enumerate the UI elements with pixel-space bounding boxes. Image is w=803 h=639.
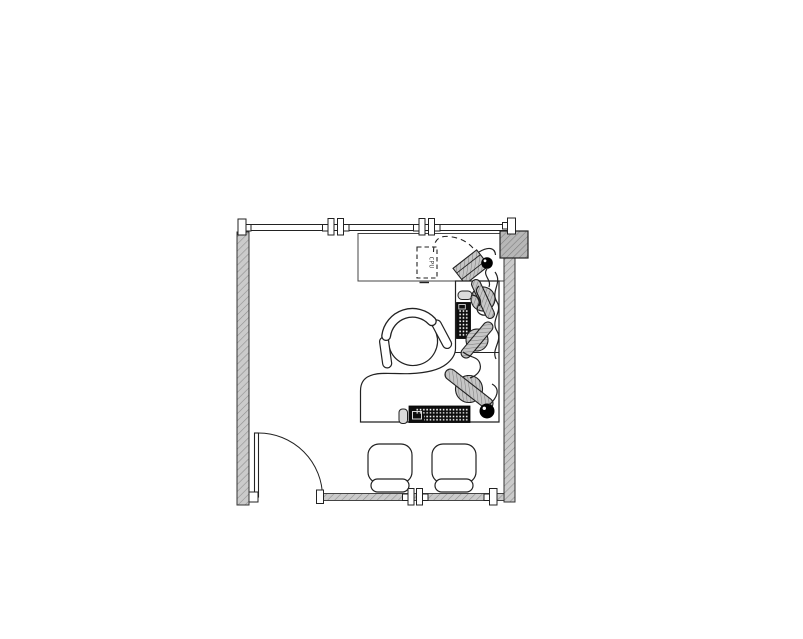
guest-chair-1: [368, 444, 412, 492]
guest-chair-2: [432, 444, 476, 492]
cpu-label: CPU: [428, 257, 435, 269]
keyboard-lower: [409, 406, 470, 423]
mullion-double-1: [323, 219, 350, 236]
right-wall: [504, 257, 515, 502]
window-mullion-wall-top: [238, 218, 516, 235]
puck-device-credenza: [481, 257, 493, 269]
task-chair: [369, 303, 455, 376]
door-with-swing: [249, 433, 323, 502]
left-wall: [237, 232, 249, 505]
mouse-return: [458, 291, 472, 300]
floor-plan-document: CPU: [0, 0, 803, 639]
building-column: [500, 231, 528, 258]
floor-plan-canvas: CPU: [0, 0, 803, 639]
puck-device-lower: [480, 404, 495, 419]
mouse-lower: [399, 409, 408, 424]
window-sill-wall-bottom: [317, 489, 505, 506]
mullion-door-stop: [317, 490, 324, 504]
mullion-end-bottom-right: [484, 489, 497, 506]
mullion-double-2: [414, 219, 441, 236]
